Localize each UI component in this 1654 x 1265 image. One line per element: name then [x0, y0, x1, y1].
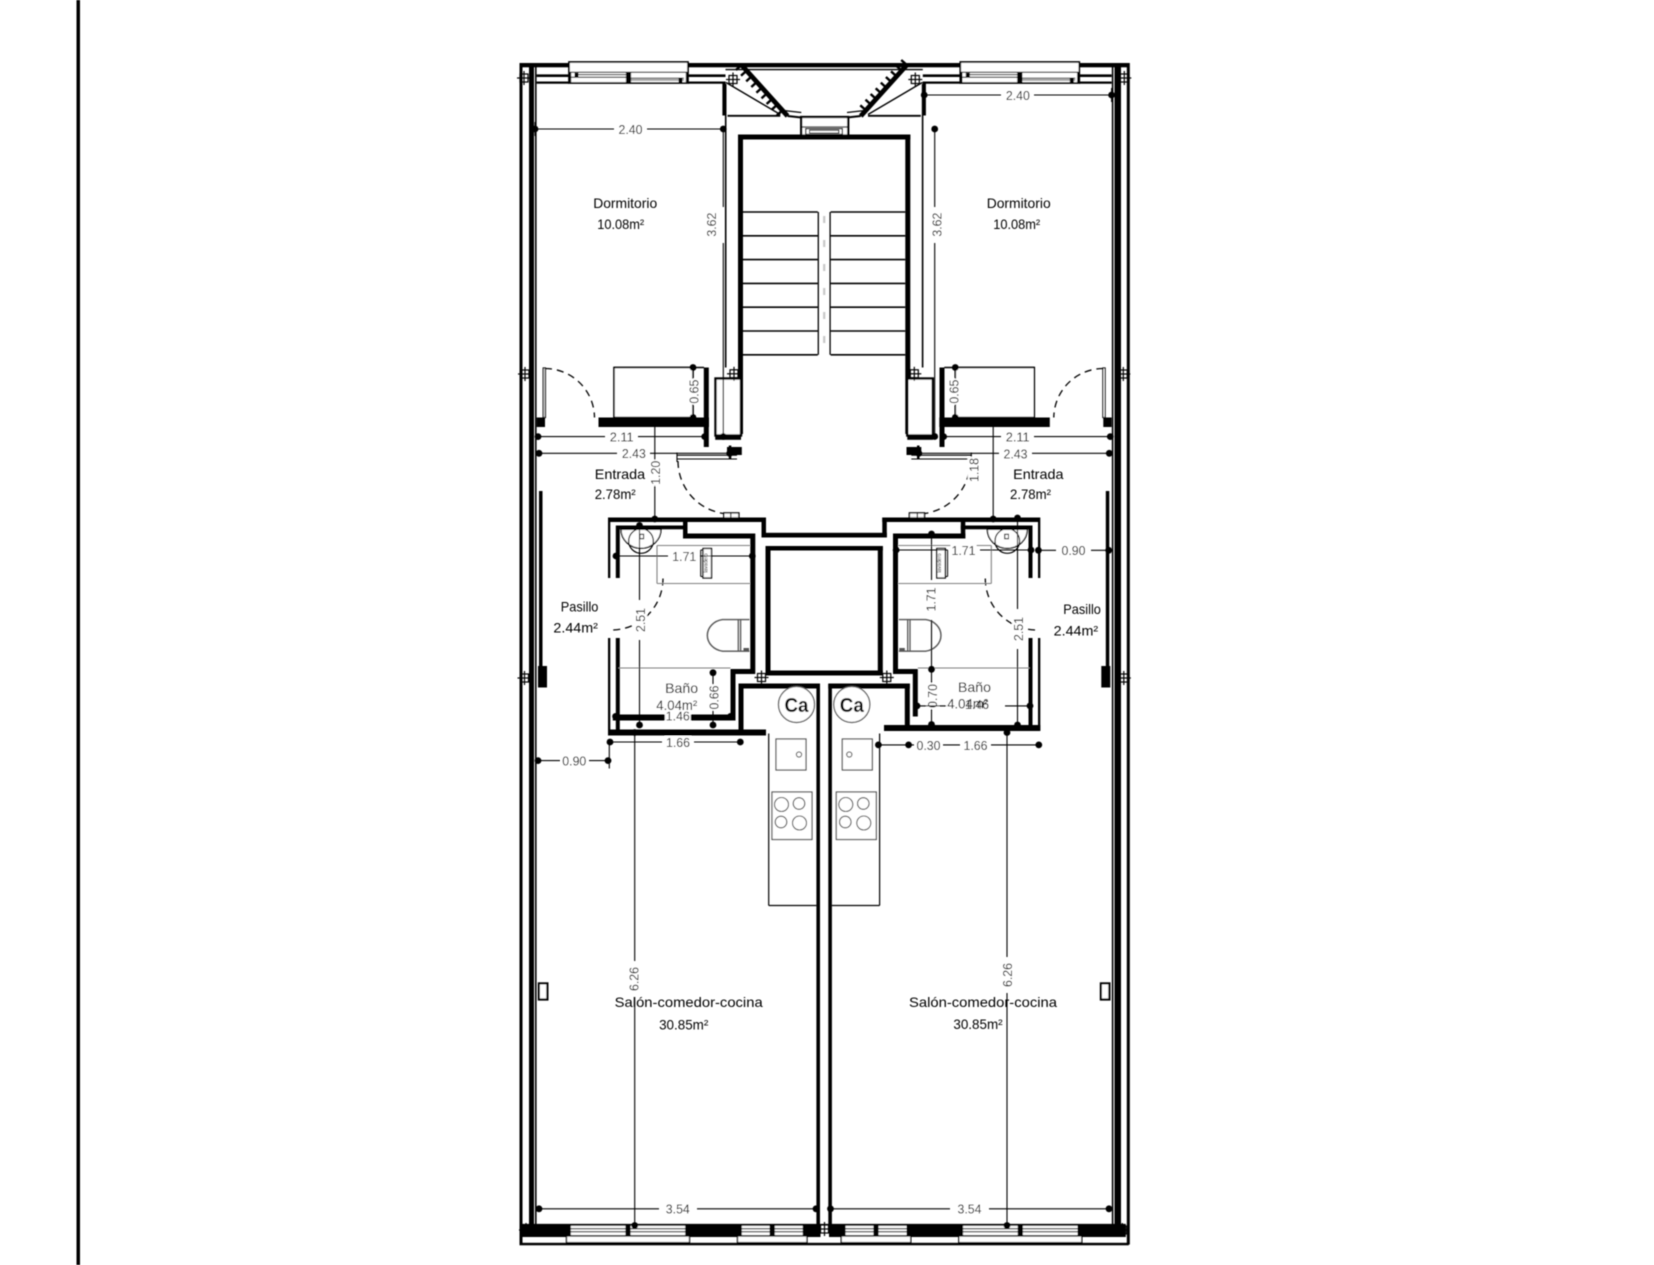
svg-text:3.62: 3.62: [704, 213, 719, 237]
svg-text:2.40: 2.40: [619, 122, 643, 137]
svg-text:2.43: 2.43: [1004, 447, 1028, 462]
svg-text:1.71: 1.71: [952, 543, 976, 558]
svg-text:1.66: 1.66: [964, 738, 988, 753]
svg-text:3.54: 3.54: [958, 1202, 982, 1217]
svg-text:Entrada: Entrada: [1013, 466, 1064, 482]
svg-text:Dormitorio: Dormitorio: [987, 195, 1051, 211]
svg-text:2.43: 2.43: [622, 446, 646, 461]
svg-text:30.85m²: 30.85m²: [953, 1016, 1003, 1032]
svg-text:0.30: 0.30: [917, 738, 941, 753]
svg-text:10.08m²: 10.08m²: [597, 216, 644, 232]
svg-text:2.40: 2.40: [1006, 88, 1030, 103]
svg-text:Baño: Baño: [958, 679, 991, 695]
svg-text:0.65: 0.65: [686, 380, 701, 404]
svg-text:1.71: 1.71: [923, 588, 938, 612]
svg-text:6.26: 6.26: [1000, 963, 1015, 987]
svg-text:2.51: 2.51: [1011, 617, 1026, 641]
svg-text:1.71: 1.71: [672, 549, 696, 564]
svg-text:2.44m²: 2.44m²: [553, 619, 598, 635]
svg-text:2.78m²: 2.78m²: [1010, 486, 1051, 502]
svg-text:0.70: 0.70: [925, 684, 940, 708]
svg-text:Dormitorio: Dormitorio: [593, 195, 657, 211]
svg-text:Ca: Ca: [840, 695, 865, 717]
svg-text:2.51: 2.51: [633, 608, 648, 632]
svg-text:Pasillo: Pasillo: [561, 598, 599, 614]
svg-text:lavadero: lavadero: [937, 553, 943, 572]
svg-text:Ca: Ca: [785, 695, 810, 717]
svg-text:Salón-comedor-cocina: Salón-comedor-cocina: [909, 994, 1057, 1010]
svg-text:Baño: Baño: [665, 680, 698, 696]
svg-text:1.18: 1.18: [966, 458, 981, 482]
svg-text:1.46: 1.46: [965, 697, 989, 712]
svg-text:6.26: 6.26: [627, 967, 642, 991]
svg-text:Pasillo: Pasillo: [1063, 601, 1101, 617]
svg-text:0.90: 0.90: [562, 754, 586, 769]
svg-text:2.11: 2.11: [1006, 430, 1030, 445]
svg-text:0.66: 0.66: [707, 686, 722, 710]
svg-text:2.78m²: 2.78m²: [595, 486, 636, 502]
svg-text:1.20: 1.20: [648, 461, 663, 485]
svg-text:0.65: 0.65: [947, 380, 962, 404]
svg-text:10.08m²: 10.08m²: [993, 216, 1040, 232]
svg-text:Salón-comedor-cocina: Salón-comedor-cocina: [615, 994, 763, 1010]
svg-text:1.66: 1.66: [666, 735, 690, 750]
svg-text:4.04m²: 4.04m²: [656, 697, 697, 713]
svg-text:0.90: 0.90: [1062, 543, 1086, 558]
svg-text:2.44m²: 2.44m²: [1054, 622, 1099, 638]
svg-text:Entrada: Entrada: [595, 466, 646, 482]
svg-text:3.62: 3.62: [929, 213, 944, 237]
svg-text:3.54: 3.54: [666, 1202, 690, 1217]
svg-text:30.85m²: 30.85m²: [659, 1016, 709, 1032]
svg-text:2.11: 2.11: [610, 430, 634, 445]
